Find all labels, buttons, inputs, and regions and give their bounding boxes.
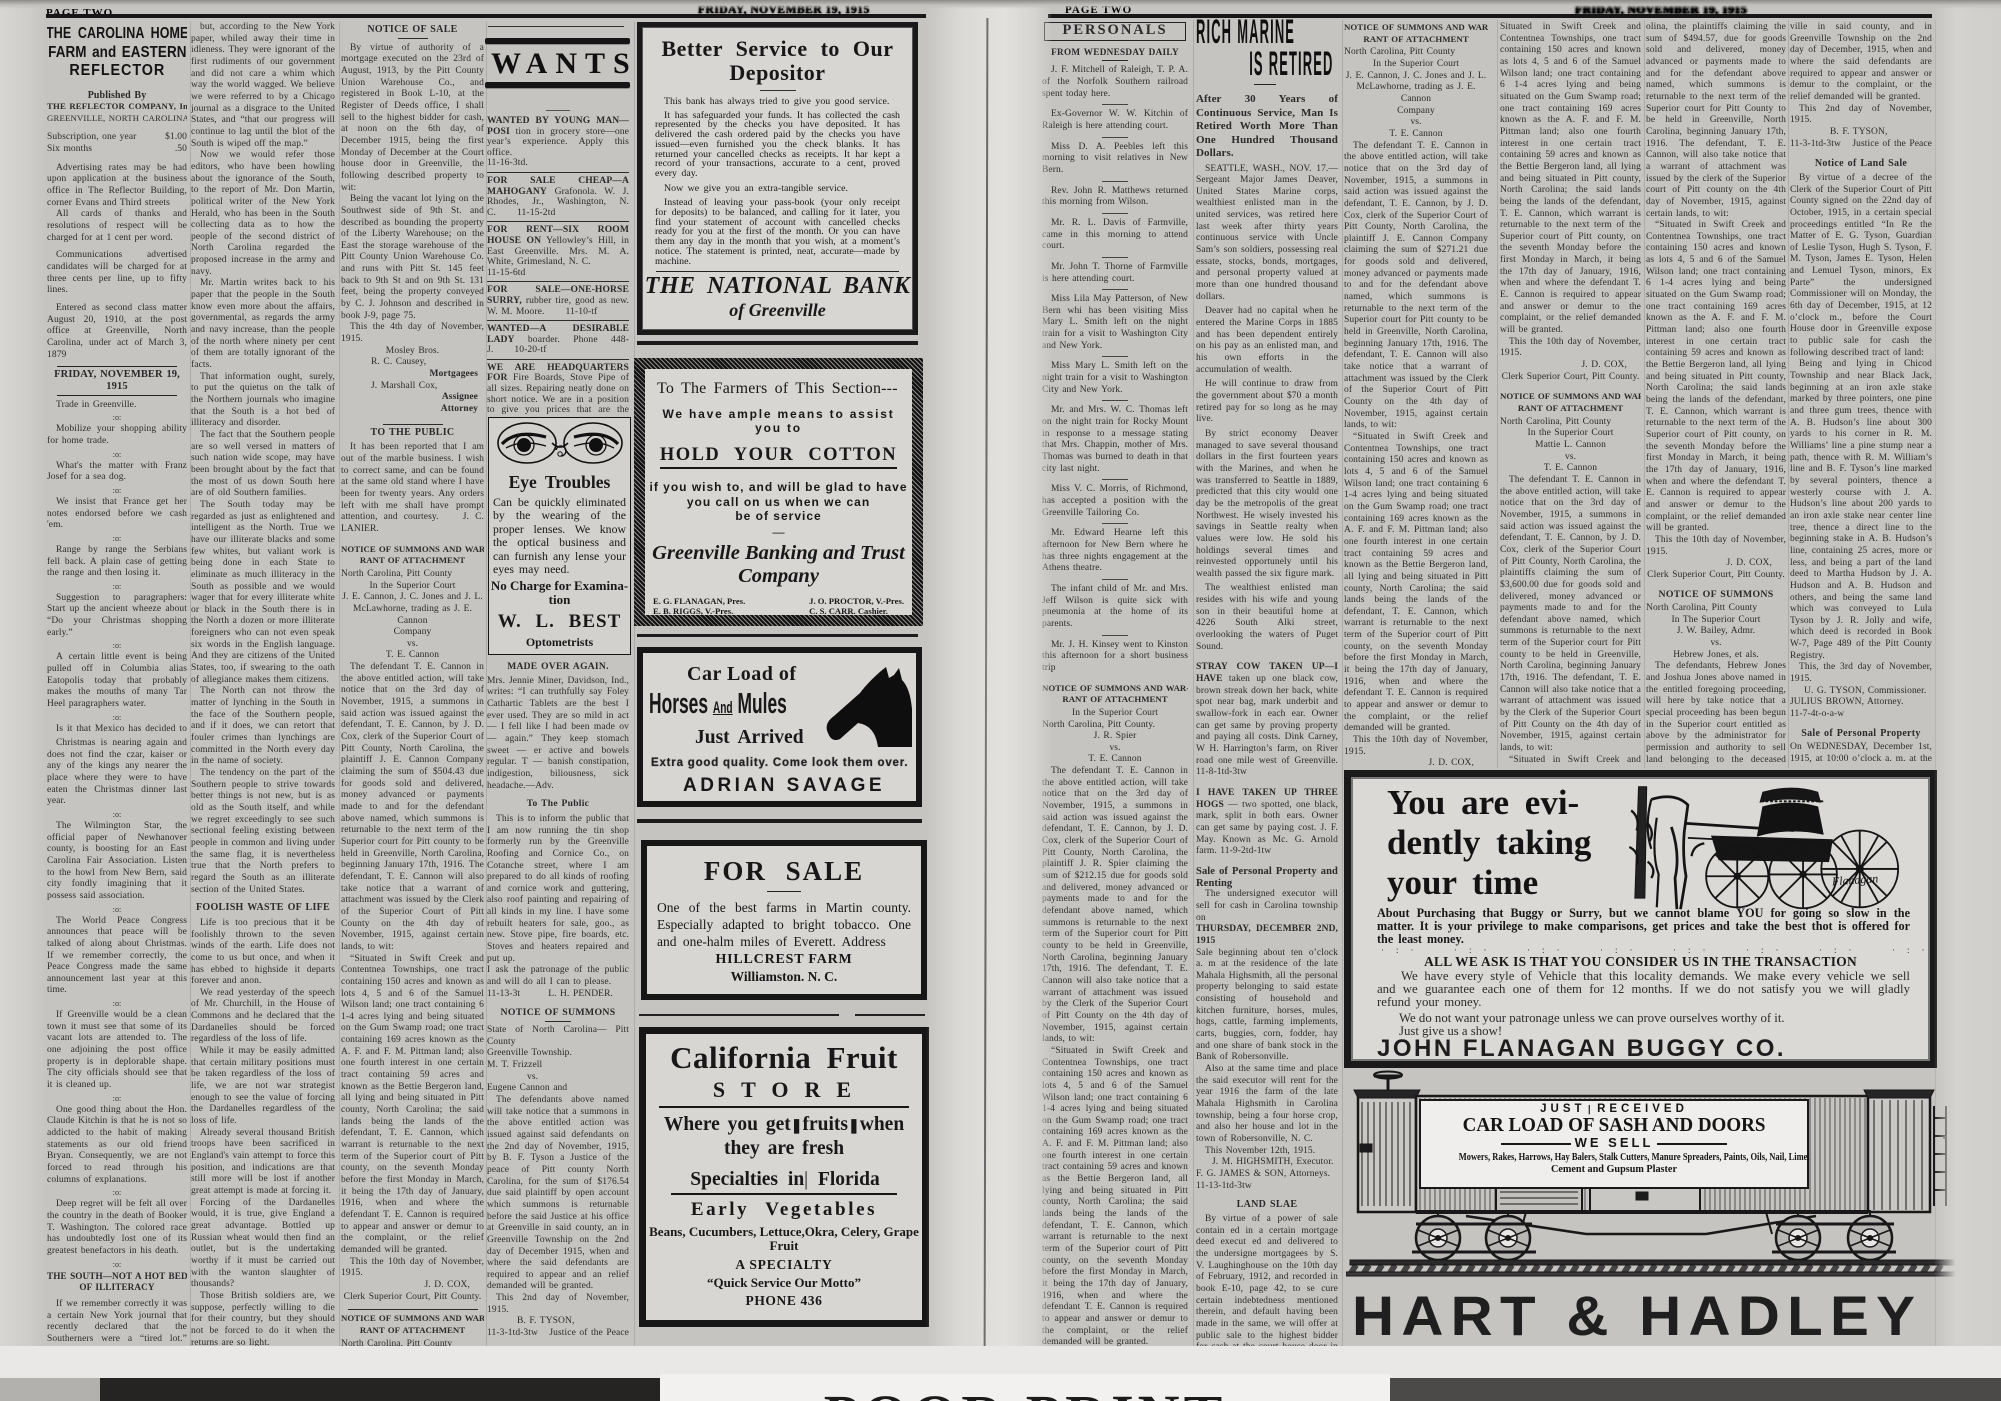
svg-text:Flanagan: Flanagan — [1831, 871, 1879, 888]
